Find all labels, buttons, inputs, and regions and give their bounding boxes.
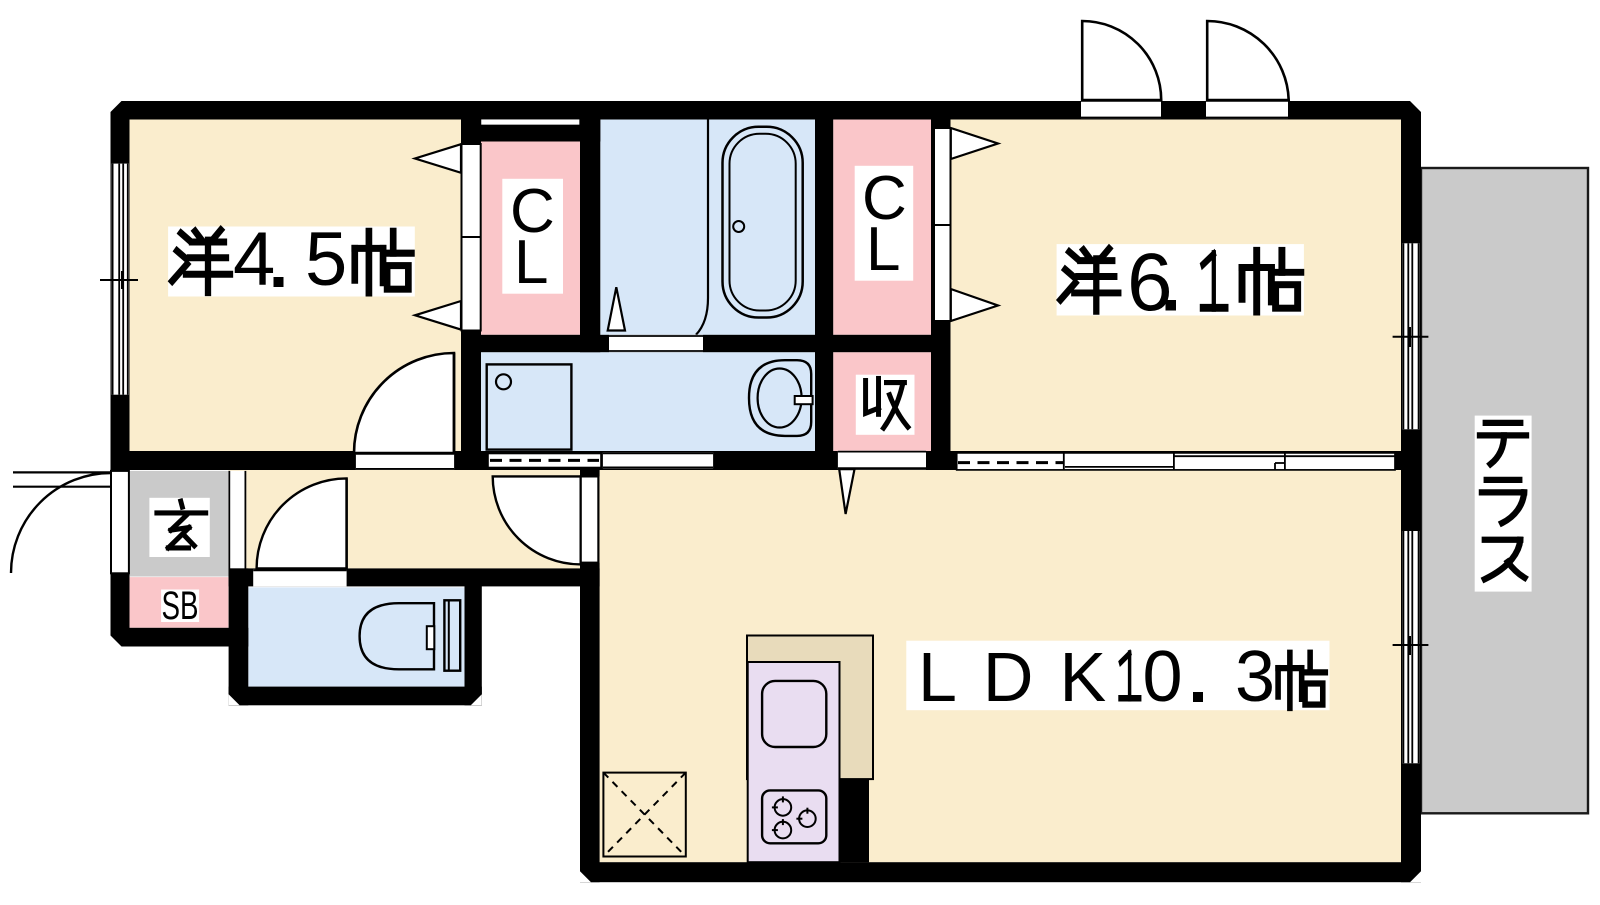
svg-text:L: L (866, 215, 900, 284)
svg-text:3: 3 (1235, 637, 1275, 717)
svg-text:LDK: LDK (918, 638, 1132, 716)
svg-text:6: 6 (1127, 237, 1173, 328)
svg-text:4: 4 (233, 217, 275, 302)
svg-text:SB: SB (162, 584, 199, 628)
svg-text:5: 5 (305, 217, 347, 302)
svg-text:0: 0 (1143, 637, 1183, 717)
svg-text:L: L (514, 228, 548, 297)
